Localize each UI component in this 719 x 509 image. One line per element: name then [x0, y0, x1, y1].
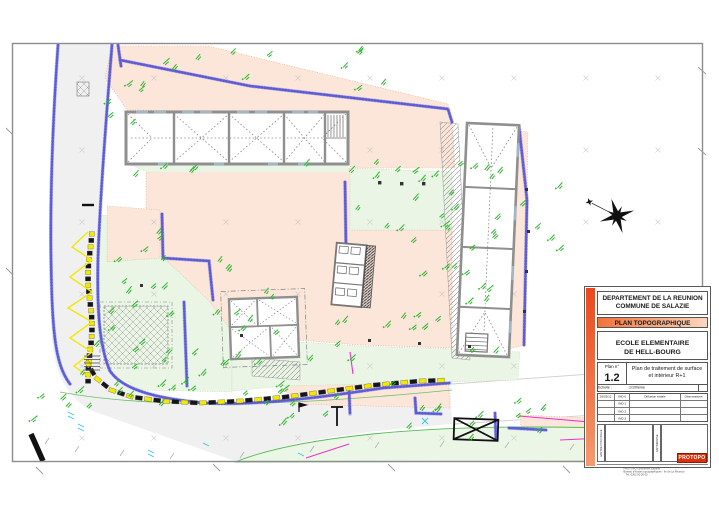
zone-green-east-band — [350, 168, 452, 230]
project-name-line1: ECOLE ELEMENTAIRE — [598, 339, 707, 348]
stairs-east-building — [465, 333, 488, 352]
contractor-label-strip: ENTREPRISE — [653, 424, 661, 462]
zone-peach-west — [107, 206, 160, 262]
plan-description-line1: Plan de traitement de surface — [632, 366, 702, 373]
playground-hatch — [104, 306, 168, 364]
owner-label-strip: MAITRE D'OUVRAGE — [597, 424, 605, 462]
sanitary-block — [331, 243, 375, 308]
scale-value: 1/100ème — [629, 386, 645, 390]
revision-row: IND 3 — [598, 415, 707, 421]
topographic-plan-sheet: DEPARTEMENT DE LA REUNION COMMUNE DE SAL… — [0, 0, 719, 509]
plan-number-label: Plan n° — [604, 364, 619, 369]
revision-index: IND 0 — [618, 395, 626, 398]
revision-row: 29/03/12 IND 0 Diffusion initiale Observ… — [598, 394, 707, 401]
plan-number-value: 1.2 — [598, 372, 626, 384]
department-title: DEPARTEMENT DE LA REUNION — [598, 295, 707, 303]
title-block: DEPARTEMENT DE LA REUNION COMMUNE DE SAL… — [584, 286, 711, 468]
plan-number-cell: Plan n° 1.2 — [597, 362, 627, 385]
long-building — [126, 112, 348, 164]
project-name: ECOLE ELEMENTAIRE DE HELL-BOURG — [597, 331, 708, 360]
contractor-label: ENTREPRISE — [655, 434, 658, 451]
revision-row: IND 1 — [598, 401, 707, 408]
scale-row: Echelle : 1/100ème — [597, 385, 708, 392]
plan-type-banner: PLAN TOPOGRAPHIQUE — [597, 317, 708, 328]
owner-box — [605, 424, 653, 462]
revision-row: IND 2 — [598, 408, 707, 415]
title-block-accent-band — [586, 288, 595, 466]
plan-description: Plan de traitement de surface et intérie… — [627, 362, 708, 385]
scale-label: Echelle : — [598, 386, 612, 390]
revision-date: 29/03/12 — [600, 395, 612, 398]
title-block-footer: PROTOPO Géomètres Experts Bureau d'étude… — [597, 464, 708, 465]
revision-label: Diffusion initiale — [644, 395, 665, 398]
title-block-header: DEPARTEMENT DE LA REUNION COMMUNE DE SAL… — [597, 291, 708, 315]
plan-description-line2: et intérieur R+1 — [648, 373, 685, 380]
commune-title: COMMUNE DE SALAZIE — [598, 303, 707, 311]
pavilion-building — [221, 289, 308, 368]
owner-label: MAITRE D'OUVRAGE — [599, 430, 602, 457]
revision-observations: Observations — [685, 395, 703, 398]
small-structure-hatch — [77, 82, 89, 96]
revision-table: 29/03/12 IND 0 Diffusion initiale Observ… — [597, 393, 708, 423]
east-building — [457, 123, 519, 357]
protopo-logo: PROTOPO — [677, 453, 707, 463]
project-name-line2: DE HELL-BOURG — [598, 348, 707, 357]
plan-number-row: Plan n° 1.2 Plan de traitement de surfac… — [597, 362, 708, 385]
surveyor-info: PROTOPO Géomètres Experts Bureau d'étude… — [597, 467, 676, 476]
